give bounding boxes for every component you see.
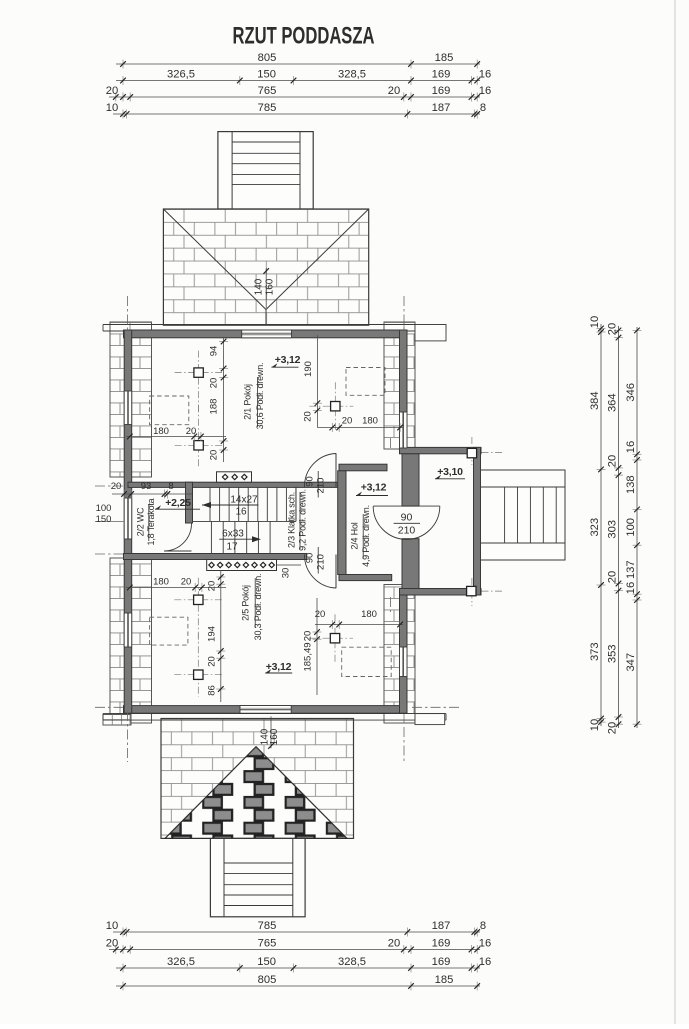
- svg-text:805: 805: [258, 974, 277, 986]
- svg-text:1,8 Terakota: 1,8 Terakota: [146, 498, 156, 545]
- svg-text:169: 169: [432, 85, 451, 97]
- svg-text:187: 187: [432, 920, 451, 932]
- svg-text:20: 20: [607, 455, 619, 467]
- svg-text:90: 90: [305, 553, 316, 564]
- svg-text:160: 160: [269, 728, 280, 745]
- svg-text:187: 187: [432, 102, 451, 114]
- svg-text:20: 20: [207, 656, 218, 667]
- svg-text:326,5: 326,5: [167, 956, 195, 968]
- svg-text:20: 20: [186, 426, 197, 437]
- svg-text:6x33: 6x33: [222, 529, 244, 540]
- svg-text:785: 785: [258, 102, 277, 114]
- svg-text:16: 16: [625, 582, 637, 594]
- svg-text:8: 8: [480, 920, 486, 932]
- svg-text:323: 323: [589, 518, 601, 537]
- svg-text:30,3 Podł. drewn.: 30,3 Podł. drewn.: [253, 574, 263, 641]
- svg-text:20: 20: [209, 378, 220, 389]
- svg-text:328,5: 328,5: [338, 956, 366, 968]
- svg-text:10: 10: [589, 719, 601, 731]
- svg-text:93: 93: [141, 481, 152, 492]
- svg-text:785: 785: [258, 920, 277, 932]
- svg-text:210: 210: [316, 554, 327, 570]
- svg-text:210: 210: [398, 525, 416, 537]
- svg-text:169: 169: [432, 956, 451, 968]
- svg-text:90: 90: [401, 512, 413, 524]
- svg-text:180: 180: [153, 577, 169, 588]
- svg-text:20: 20: [207, 581, 218, 592]
- svg-text:90: 90: [305, 476, 316, 487]
- svg-text:185: 185: [435, 52, 454, 64]
- svg-text:169: 169: [432, 938, 451, 950]
- svg-text:94: 94: [209, 346, 220, 357]
- svg-text:180: 180: [153, 426, 169, 437]
- svg-text:20: 20: [342, 416, 353, 427]
- svg-text:20: 20: [303, 411, 314, 422]
- svg-text:185: 185: [435, 974, 454, 986]
- svg-text:2/4 Hol: 2/4 Hol: [350, 522, 360, 549]
- svg-text:+3,10: +3,10: [437, 466, 463, 478]
- svg-text:20: 20: [111, 481, 122, 492]
- svg-text:180: 180: [362, 416, 378, 427]
- svg-text:194: 194: [207, 626, 218, 642]
- svg-text:373: 373: [589, 642, 601, 661]
- svg-text:100: 100: [625, 518, 637, 537]
- svg-text:150: 150: [257, 956, 276, 968]
- svg-text:16: 16: [235, 507, 247, 518]
- svg-text:2/1 Pokój: 2/1 Pokój: [243, 384, 253, 420]
- svg-text:140: 140: [254, 278, 265, 295]
- svg-text:4,9 Podł. drewn.: 4,9 Podł. drewn.: [361, 505, 371, 567]
- svg-text:16: 16: [479, 938, 491, 950]
- svg-text:364: 364: [607, 393, 619, 412]
- svg-text:RZUT PODDASZA: RZUT PODDASZA: [233, 23, 375, 50]
- svg-text:160: 160: [265, 278, 276, 295]
- svg-text:8: 8: [168, 481, 173, 492]
- svg-text:16: 16: [479, 85, 491, 97]
- svg-text:16: 16: [625, 441, 637, 453]
- svg-text:14x27: 14x27: [230, 494, 258, 505]
- svg-text:150: 150: [96, 514, 112, 525]
- svg-text:30,6 Podł. drewn.: 30,6 Podł. drewn.: [255, 363, 265, 430]
- svg-text:10: 10: [106, 102, 118, 114]
- svg-text:303: 303: [607, 520, 619, 539]
- svg-text:137: 137: [625, 560, 637, 579]
- svg-text:353: 353: [607, 644, 619, 663]
- svg-text:17: 17: [226, 542, 238, 553]
- svg-text:150: 150: [257, 69, 276, 81]
- svg-text:346: 346: [625, 383, 637, 402]
- svg-text:86: 86: [207, 685, 218, 696]
- svg-text:20: 20: [607, 323, 619, 335]
- svg-text:100: 100: [96, 503, 112, 514]
- svg-text:185,49: 185,49: [303, 642, 314, 671]
- svg-text:16: 16: [479, 956, 491, 968]
- svg-text:2/2 WC: 2/2 WC: [136, 507, 146, 537]
- svg-text:20: 20: [607, 722, 619, 734]
- svg-text:138: 138: [625, 475, 637, 494]
- svg-text:805: 805: [258, 52, 277, 64]
- svg-text:10: 10: [106, 920, 118, 932]
- svg-text:9,2 Podł. drewn.: 9,2 Podł. drewn.: [298, 489, 308, 551]
- svg-text:20: 20: [388, 938, 400, 950]
- svg-text:20: 20: [106, 938, 118, 950]
- svg-text:16: 16: [479, 69, 491, 81]
- svg-text:384: 384: [589, 391, 601, 410]
- svg-text:180: 180: [361, 609, 377, 620]
- svg-text:20: 20: [303, 631, 314, 642]
- svg-text:8: 8: [480, 102, 486, 114]
- svg-text:190: 190: [303, 361, 314, 377]
- svg-text:2/5 Pokój: 2/5 Pokój: [241, 585, 251, 621]
- svg-text:10: 10: [589, 316, 601, 328]
- svg-text:+3,12: +3,12: [361, 482, 387, 494]
- svg-text:328,5: 328,5: [338, 69, 366, 81]
- svg-text:765: 765: [258, 938, 277, 950]
- svg-text:210: 210: [316, 478, 327, 494]
- svg-text:+3,12: +3,12: [275, 354, 301, 366]
- svg-text:326,5: 326,5: [167, 69, 195, 81]
- svg-text:169: 169: [432, 69, 451, 81]
- svg-text:347: 347: [625, 653, 637, 672]
- svg-text:20: 20: [607, 571, 619, 583]
- svg-text:2/3 Klatka sch.: 2/3 Klatka sch.: [287, 492, 297, 548]
- svg-text:20: 20: [315, 609, 326, 620]
- svg-text:30: 30: [281, 568, 292, 579]
- svg-text:+2,25: +2,25: [165, 497, 191, 509]
- svg-text:765: 765: [258, 85, 277, 97]
- svg-text:20: 20: [106, 85, 118, 97]
- svg-text:188: 188: [209, 399, 220, 415]
- svg-text:20: 20: [181, 577, 192, 588]
- svg-text:20: 20: [388, 85, 400, 97]
- svg-text:20: 20: [209, 450, 220, 461]
